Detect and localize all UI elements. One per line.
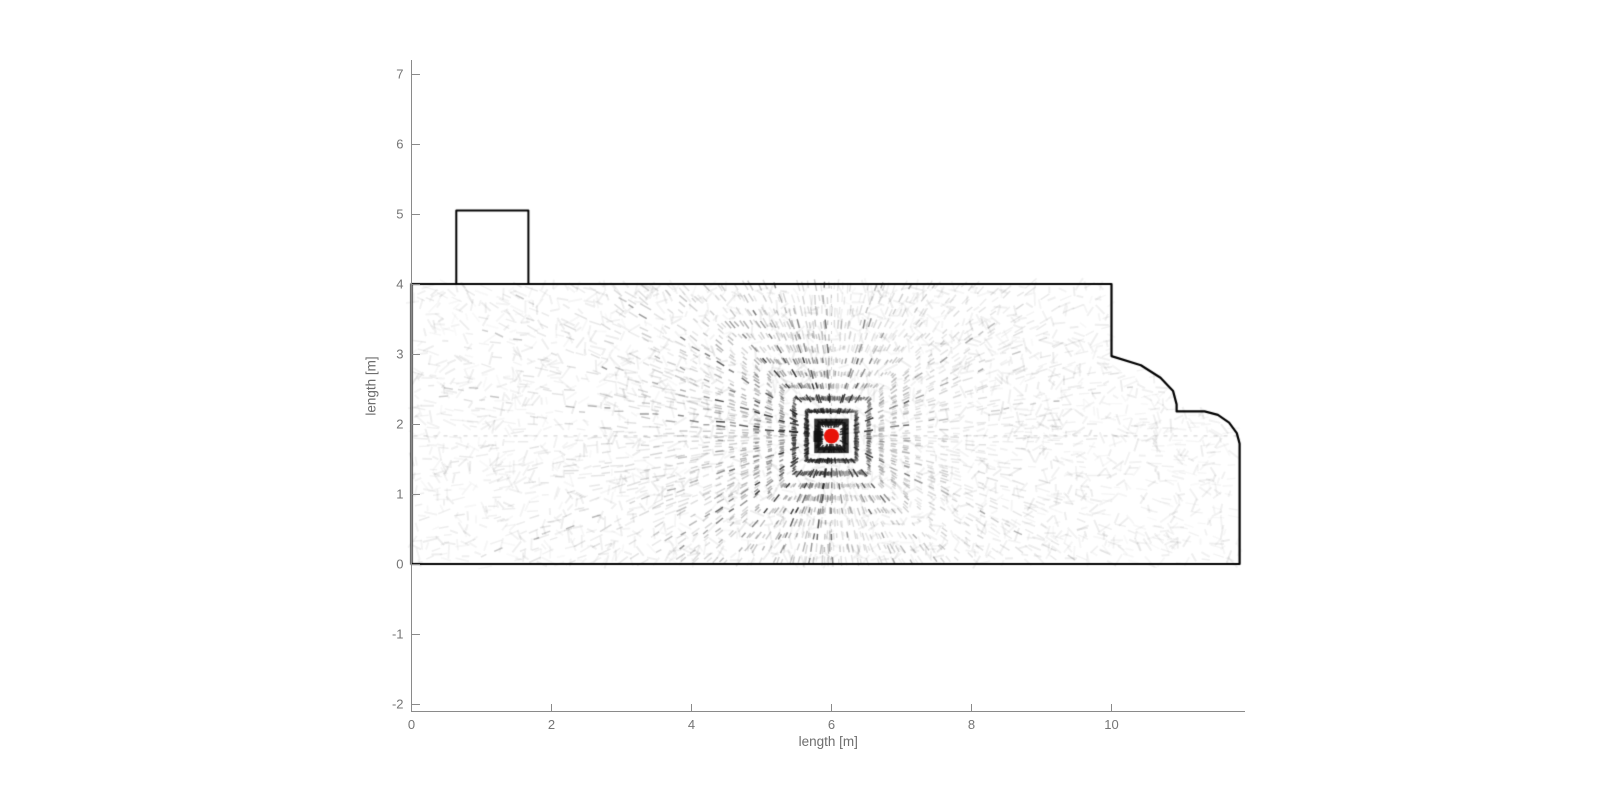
- y-tick-label: 1: [396, 488, 403, 501]
- x-tick-label: 10: [1104, 718, 1118, 731]
- y-tick: [412, 494, 420, 495]
- y-tick: [412, 354, 420, 355]
- x-axis-line: [411, 711, 1245, 712]
- matlab-figure: 0246810 -2-101234567 length [m] length […: [0, 0, 1600, 803]
- y-tick: [412, 634, 420, 635]
- y-tick: [412, 214, 420, 215]
- x-tick-label: 0: [408, 718, 415, 731]
- y-tick-label: 6: [396, 138, 403, 151]
- x-tick-label: 4: [688, 718, 695, 731]
- y-tick-label: 2: [396, 418, 403, 431]
- y-tick-label: 7: [396, 68, 403, 81]
- y-tick-label: 4: [396, 278, 403, 291]
- y-tick-label: 0: [396, 558, 403, 571]
- y-tick: [412, 74, 420, 75]
- y-tick-label: -1: [392, 628, 404, 641]
- y-tick: [412, 564, 420, 565]
- x-tick: [551, 704, 552, 712]
- y-axis-line: [411, 60, 412, 712]
- y-axis-label: length [m]: [364, 356, 379, 415]
- x-tick: [971, 704, 972, 712]
- scan-canvas: [0, 0, 1600, 803]
- y-tick: [412, 424, 420, 425]
- x-tick-label: 8: [968, 718, 975, 731]
- y-tick-label: 5: [396, 208, 403, 221]
- x-axis-label: length [m]: [799, 734, 858, 749]
- x-tick-label: 2: [548, 718, 555, 731]
- y-tick: [412, 284, 420, 285]
- y-tick-label: 3: [396, 348, 403, 361]
- x-tick: [411, 704, 412, 712]
- x-tick-label: 6: [828, 718, 835, 731]
- x-tick: [691, 704, 692, 712]
- y-tick-label: -2: [392, 698, 404, 711]
- y-tick: [412, 144, 420, 145]
- x-tick: [1111, 704, 1112, 712]
- y-tick: [412, 704, 420, 705]
- x-tick: [831, 704, 832, 712]
